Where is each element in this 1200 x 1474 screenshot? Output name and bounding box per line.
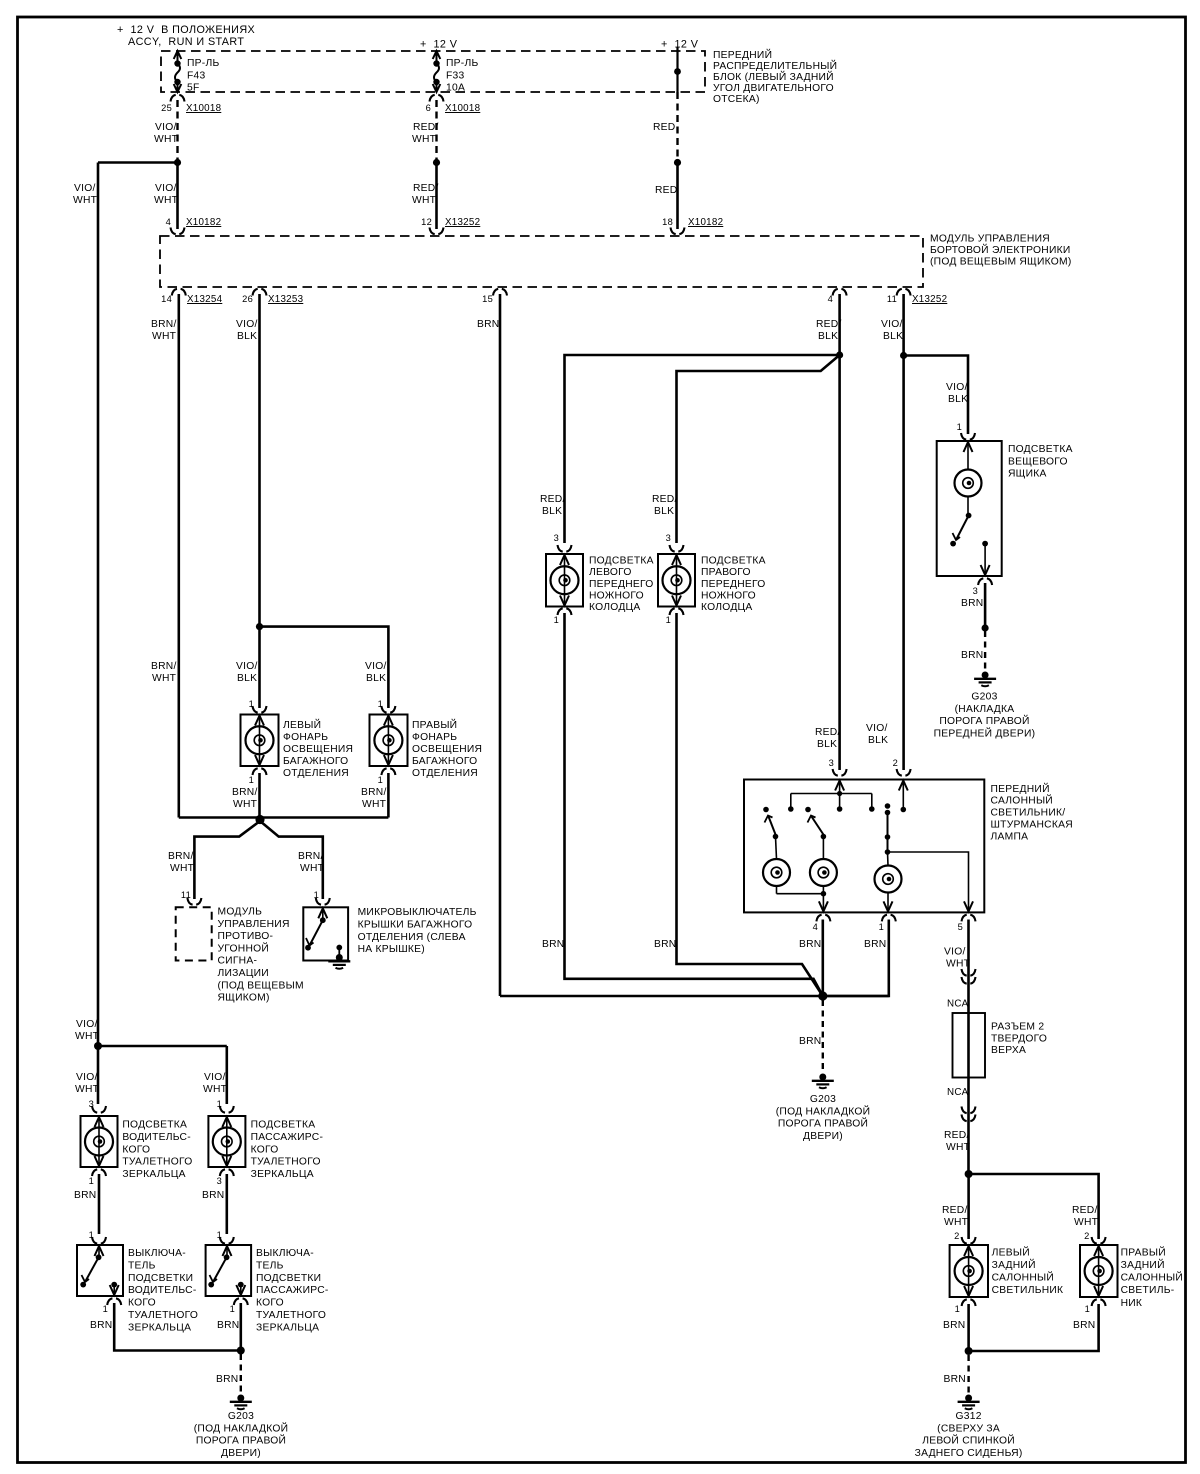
svg-text:BRN: BRN [944, 1374, 967, 1385]
svg-text:РАЗЪЕМ 2: РАЗЪЕМ 2 [991, 1022, 1044, 1033]
svg-text:VIO/: VIO/ [946, 382, 968, 393]
svg-text:ПОДСВЕТКА: ПОДСВЕТКА [701, 556, 766, 567]
svg-text:ЛЕВОГО: ЛЕВОГО [589, 567, 632, 578]
svg-text:WHT: WHT [946, 1142, 971, 1153]
svg-text:ЗАДНЕГО СИДЕНЬЯ): ЗАДНЕГО СИДЕНЬЯ) [915, 1448, 1023, 1459]
svg-text:ЯЩИКОМ): ЯЩИКОМ) [218, 993, 270, 1004]
svg-text:WHT: WHT [170, 863, 195, 874]
svg-text:5F: 5F [187, 83, 200, 94]
svg-text:+ 12 V: + 12 V [420, 39, 458, 51]
svg-text:BRN: BRN [477, 319, 500, 330]
svg-text:12: 12 [421, 217, 432, 227]
svg-text:РАСПРЕДЕЛИТЕЛЬНЫЙ: РАСПРЕДЕЛИТЕЛЬНЫЙ [713, 59, 837, 72]
svg-text:WHT: WHT [300, 863, 325, 874]
svg-text:WHT: WHT [1074, 1217, 1099, 1228]
svg-text:ОТСЕКА): ОТСЕКА) [713, 94, 760, 105]
svg-text:RED/: RED/ [944, 1130, 970, 1141]
svg-text:1: 1 [378, 775, 383, 785]
svg-text:X13253: X13253 [268, 294, 304, 305]
svg-text:3: 3 [829, 758, 834, 768]
svg-text:WHT: WHT [946, 959, 971, 970]
svg-text:VIO/: VIO/ [944, 947, 966, 958]
svg-text:ПОРОГА ПРАВОЙ: ПОРОГА ПРАВОЙ [196, 1434, 286, 1447]
svg-text:МОДУЛЬ: МОДУЛЬ [218, 907, 263, 918]
svg-text:BLK: BLK [868, 735, 888, 746]
svg-text:WHT: WHT [944, 1217, 969, 1228]
svg-text:BRN/: BRN/ [151, 661, 177, 672]
svg-text:RED/: RED/ [652, 494, 678, 505]
svg-text:3: 3 [217, 1176, 222, 1186]
svg-text:КОГО: КОГО [122, 1144, 150, 1155]
svg-text:BRN: BRN [90, 1320, 113, 1331]
svg-text:G203: G203 [810, 1094, 836, 1105]
svg-text:ТУАЛЕТНОГО: ТУАЛЕТНОГО [128, 1310, 198, 1321]
svg-text:КОЛОДЦА: КОЛОДЦА [701, 602, 753, 613]
svg-text:ОТДЕЛЕНИЯ (СЛЕВА: ОТДЕЛЕНИЯ (СЛЕВА [358, 932, 466, 943]
svg-text:БЛОК (ЛЕВЫЙ ЗАДНИЙ: БЛОК (ЛЕВЫЙ ЗАДНИЙ [713, 70, 834, 83]
svg-text:ТВЕРДОГО: ТВЕРДОГО [991, 1033, 1047, 1044]
svg-text:ВЕРХА: ВЕРХА [991, 1045, 1026, 1056]
svg-text:WHT: WHT [362, 799, 387, 810]
svg-text:ВЫКЛЮЧА-: ВЫКЛЮЧА- [128, 1248, 186, 1259]
svg-text:УГОННОЙ: УГОННОЙ [218, 941, 270, 954]
svg-text:1: 1 [89, 1176, 94, 1186]
svg-text:ДВЕРИ): ДВЕРИ) [803, 1131, 843, 1142]
svg-text:ЗЕРКАЛЬЦА: ЗЕРКАЛЬЦА [256, 1322, 319, 1333]
svg-text:ACCY, RUN И START: ACCY, RUN И START [128, 36, 244, 48]
svg-text:(ПОД НАКЛАДКОЙ: (ПОД НАКЛАДКОЙ [776, 1104, 870, 1117]
svg-text:КРЫШКИ БАГАЖНОГО: КРЫШКИ БАГАЖНОГО [358, 920, 473, 931]
svg-text:5: 5 [958, 922, 963, 932]
svg-text:ЗАДНИЙ: ЗАДНИЙ [992, 1258, 1036, 1271]
svg-text:1: 1 [1085, 1304, 1090, 1314]
svg-text:ОСВЕЩЕНИЯ: ОСВЕЩЕНИЯ [412, 744, 482, 755]
svg-text:10A: 10A [446, 83, 465, 94]
svg-text:КОГО: КОГО [256, 1298, 284, 1309]
svg-text:НОЖНОГО: НОЖНОГО [589, 590, 644, 601]
svg-text:BRN: BRN [654, 939, 677, 950]
svg-text:ЛАМПА: ЛАМПА [991, 831, 1029, 842]
svg-text:ПЕРЕДНЕГО: ПЕРЕДНЕГО [589, 579, 654, 590]
svg-text:WHT: WHT [75, 1084, 100, 1095]
svg-text:4: 4 [166, 217, 171, 227]
svg-text:МИКРОВЫКЛЮЧАТЕЛЬ: МИКРОВЫКЛЮЧАТЕЛЬ [358, 907, 477, 918]
svg-text:БАГАЖНОГО: БАГАЖНОГО [283, 756, 348, 767]
svg-text:RED/: RED/ [540, 494, 566, 505]
svg-text:КОЛОДЦА: КОЛОДЦА [589, 602, 641, 613]
svg-text:BRN/: BRN/ [298, 851, 324, 862]
svg-text:X10182: X10182 [186, 217, 221, 228]
svg-text:BLK: BLK [654, 506, 674, 517]
svg-text:БАГАЖНОГО: БАГАЖНОГО [412, 756, 477, 767]
svg-text:КОГО: КОГО [251, 1144, 279, 1155]
svg-text:VIO/: VIO/ [236, 661, 258, 672]
svg-text:BRN: BRN [217, 1320, 240, 1331]
svg-text:ПР-ЛЬ: ПР-ЛЬ [187, 58, 219, 69]
svg-text:БОРТОВОЙ ЭЛЕКТРОНИКИ: БОРТОВОЙ ЭЛЕКТРОНИКИ [930, 243, 1071, 256]
svg-text:VIO/: VIO/ [155, 122, 177, 133]
svg-text:ПЕРЕДНЕГО: ПЕРЕДНЕГО [701, 579, 766, 590]
svg-text:WHT: WHT [154, 195, 179, 206]
svg-text:(ПОД ВЕЩЕВЫМ: (ПОД ВЕЩЕВЫМ [218, 980, 304, 991]
svg-text:НОЖНОГО: НОЖНОГО [701, 590, 756, 601]
svg-text:6: 6 [426, 103, 431, 113]
svg-text:СВЕТИЛЬНИК: СВЕТИЛЬНИК [992, 1285, 1064, 1296]
svg-text:26: 26 [242, 294, 253, 304]
svg-text:VIO/: VIO/ [365, 661, 387, 672]
svg-text:RED: RED [655, 185, 678, 196]
svg-text:ПЕРЕДНИЙ: ПЕРЕДНИЙ [991, 782, 1050, 795]
svg-text:1: 1 [666, 615, 671, 625]
svg-text:ПОРОГА ПРАВОЙ: ПОРОГА ПРАВОЙ [778, 1117, 868, 1130]
svg-text:ТУАЛЕТНОГО: ТУАЛЕТНОГО [256, 1310, 326, 1321]
svg-text:ВОДИТЕЛЬС-: ВОДИТЕЛЬС- [128, 1285, 197, 1296]
svg-text:ФОНАРЬ: ФОНАРЬ [412, 732, 457, 743]
svg-text:ТЕЛЬ: ТЕЛЬ [256, 1260, 284, 1271]
svg-text:WHT: WHT [412, 134, 437, 145]
svg-text:BRN: BRN [961, 650, 984, 661]
svg-text:BRN: BRN [74, 1190, 97, 1201]
svg-text:ОСВЕЩЕНИЯ: ОСВЕЩЕНИЯ [283, 744, 353, 755]
svg-text:RED/: RED/ [815, 727, 841, 738]
svg-text:X10018: X10018 [445, 103, 481, 114]
svg-text:X10018: X10018 [186, 103, 222, 114]
svg-text:WHT: WHT [152, 673, 177, 684]
svg-text:ЛЕВЫЙ: ЛЕВЫЙ [992, 1245, 1030, 1258]
svg-text:BRN/: BRN/ [232, 787, 258, 798]
svg-text:1: 1 [230, 1304, 235, 1314]
svg-text:ЗЕРКАЛЬЦА: ЗЕРКАЛЬЦА [122, 1169, 185, 1180]
svg-text:VIO/: VIO/ [76, 1072, 98, 1083]
svg-text:1: 1 [955, 1304, 960, 1314]
svg-text:ТУАЛЕТНОГО: ТУАЛЕТНОГО [122, 1157, 192, 1168]
svg-text:BLK: BLK [817, 739, 837, 750]
svg-text:VIO/: VIO/ [76, 1019, 98, 1030]
svg-text:2: 2 [954, 1231, 959, 1241]
svg-text:ПОДСВЕТКА: ПОДСВЕТКА [122, 1120, 187, 1131]
svg-text:+ 12 V: + 12 V [661, 39, 699, 51]
svg-text:WHT: WHT [73, 195, 98, 206]
svg-text:САЛОННЫЙ: САЛОННЫЙ [1121, 1271, 1183, 1284]
svg-text:ПР-ЛЬ: ПР-ЛЬ [446, 58, 478, 69]
svg-text:BRN: BRN [799, 1036, 822, 1047]
svg-text:ПОРОГА ПРАВОЙ: ПОРОГА ПРАВОЙ [939, 714, 1029, 727]
svg-text:VIO/: VIO/ [881, 319, 903, 330]
svg-text:ПРАВЫЙ: ПРАВЫЙ [1121, 1245, 1166, 1258]
svg-text:WHT: WHT [233, 799, 258, 810]
svg-text:1: 1 [957, 422, 962, 432]
svg-text:BRN/: BRN/ [168, 851, 194, 862]
svg-text:BRN: BRN [961, 598, 984, 609]
svg-text:1: 1 [554, 615, 559, 625]
svg-text:F33: F33 [446, 71, 465, 82]
svg-text:BLK: BLK [237, 331, 257, 342]
svg-text:11: 11 [181, 890, 191, 900]
svg-text:ЯЩИКА: ЯЩИКА [1008, 469, 1047, 480]
svg-text:ЗЕРКАЛЬЦА: ЗЕРКАЛЬЦА [251, 1169, 314, 1180]
svg-text:BRN/: BRN/ [361, 787, 387, 798]
svg-text:ПОДСВЕТКИ: ПОДСВЕТКИ [128, 1273, 193, 1284]
svg-text:X13252: X13252 [445, 217, 480, 228]
svg-text:СВЕТИЛЬНИК/: СВЕТИЛЬНИК/ [991, 808, 1066, 819]
svg-text:G203: G203 [971, 692, 997, 703]
svg-text:ПАССАЖИРС-: ПАССАЖИРС- [251, 1132, 324, 1143]
svg-text:ПОДСВЕТКИ: ПОДСВЕТКИ [256, 1273, 321, 1284]
svg-text:WHT: WHT [152, 331, 177, 342]
svg-text:BLK: BLK [542, 506, 562, 517]
svg-text:11: 11 [887, 294, 897, 304]
svg-text:ЗАДНИЙ: ЗАДНИЙ [1121, 1258, 1165, 1271]
svg-text:САЛОННЫЙ: САЛОННЫЙ [991, 794, 1053, 807]
svg-text:МОДУЛЬ УПРАВЛЕНИЯ: МОДУЛЬ УПРАВЛЕНИЯ [930, 234, 1050, 245]
svg-text:ТУАЛЕТНОГО: ТУАЛЕТНОГО [251, 1157, 321, 1168]
svg-text:СВЕТИЛЬ-: СВЕТИЛЬ- [1121, 1285, 1175, 1296]
svg-text:3: 3 [554, 533, 559, 543]
svg-text:BLK: BLK [237, 673, 257, 684]
svg-text:САЛОННЫЙ: САЛОННЫЙ [992, 1271, 1054, 1284]
svg-text:(ПОД НАКЛАДКОЙ: (ПОД НАКЛАДКОЙ [194, 1421, 288, 1434]
svg-text:УГОЛ ДВИГАТЕЛЬНОГО: УГОЛ ДВИГАТЕЛЬНОГО [713, 83, 834, 94]
svg-text:ПАССАЖИРС-: ПАССАЖИРС- [256, 1285, 329, 1296]
svg-text:WHT: WHT [154, 134, 179, 145]
svg-text:WHT: WHT [75, 1031, 100, 1042]
svg-text:2: 2 [893, 758, 898, 768]
svg-text:ТЕЛЬ: ТЕЛЬ [128, 1260, 156, 1271]
svg-text:X13254: X13254 [187, 294, 223, 305]
svg-text:ОТДЕЛЕНИЯ: ОТДЕЛЕНИЯ [412, 768, 478, 779]
svg-text:ШТУРМАНСКАЯ: ШТУРМАНСКАЯ [991, 820, 1073, 831]
svg-text:VIO/: VIO/ [866, 723, 888, 734]
svg-text:G312: G312 [955, 1411, 981, 1422]
svg-text:RED/: RED/ [816, 319, 842, 330]
svg-text:ВОДИТЕЛЬС-: ВОДИТЕЛЬС- [122, 1132, 190, 1143]
svg-text:F43: F43 [187, 71, 206, 82]
svg-text:ПОДСВЕТКА: ПОДСВЕТКА [251, 1120, 316, 1131]
svg-text:RED/: RED/ [413, 122, 439, 133]
svg-text:4: 4 [828, 294, 833, 304]
svg-text:BRN: BRN [799, 939, 822, 950]
svg-text:ПОДСВЕТКА: ПОДСВЕТКА [1008, 444, 1073, 455]
svg-text:WHT: WHT [412, 195, 437, 206]
svg-text:BRN: BRN [202, 1190, 225, 1201]
svg-text:BRN/: BRN/ [151, 319, 177, 330]
svg-text:X10182: X10182 [688, 217, 723, 228]
svg-text:+ 12 V В ПОЛОЖЕНИЯХ: + 12 V В ПОЛОЖЕНИЯХ [117, 24, 255, 36]
svg-text:BLK: BLK [883, 331, 903, 342]
svg-text:ПОДСВЕТКА: ПОДСВЕТКА [589, 556, 654, 567]
svg-text:СИГНА-: СИГНА- [218, 956, 258, 967]
svg-text:НА КРЫШКЕ): НА КРЫШКЕ) [358, 944, 425, 955]
svg-text:BLK: BLK [948, 394, 968, 405]
svg-text:NCA: NCA [947, 1087, 969, 1098]
svg-text:BLK: BLK [818, 331, 838, 342]
svg-text:BLK: BLK [366, 673, 386, 684]
svg-text:ПРАВЫЙ: ПРАВЫЙ [412, 718, 457, 731]
svg-text:RED/: RED/ [1072, 1205, 1098, 1216]
svg-text:VIO/: VIO/ [204, 1072, 226, 1083]
svg-text:1: 1 [103, 1304, 108, 1314]
svg-text:14: 14 [161, 294, 172, 304]
svg-text:ЛЕВЫЙ: ЛЕВЫЙ [283, 718, 321, 731]
svg-text:ЗЕРКАЛЬЦА: ЗЕРКАЛЬЦА [128, 1322, 191, 1333]
svg-text:WHT: WHT [203, 1084, 228, 1095]
svg-text:BRN: BRN [1073, 1320, 1096, 1331]
svg-text:(ПОД ВЕЩЕВЫМ ЯЩИКОМ): (ПОД ВЕЩЕВЫМ ЯЩИКОМ) [930, 257, 1072, 268]
svg-text:X13252: X13252 [912, 294, 947, 305]
svg-text:1: 1 [879, 922, 884, 932]
svg-text:ПРОТИВО-: ПРОТИВО- [218, 931, 274, 942]
svg-text:25: 25 [161, 103, 172, 113]
svg-text:3: 3 [973, 586, 978, 596]
svg-text:VIO/: VIO/ [74, 183, 96, 194]
svg-text:3: 3 [666, 533, 671, 543]
svg-text:RED/: RED/ [413, 183, 439, 194]
svg-text:УПРАВЛЕНИЯ: УПРАВЛЕНИЯ [218, 919, 290, 930]
svg-text:(НАКЛАДКА: (НАКЛАДКА [955, 704, 1015, 715]
svg-text:4: 4 [813, 922, 818, 932]
svg-text:BRN: BRN [542, 939, 565, 950]
svg-text:ВЫКЛЮЧА-: ВЫКЛЮЧА- [256, 1248, 314, 1259]
svg-text:КОГО: КОГО [128, 1298, 156, 1309]
svg-text:ДВЕРИ): ДВЕРИ) [221, 1448, 261, 1459]
svg-text:ЛЕВОЙ СПИНКОЙ: ЛЕВОЙ СПИНКОЙ [922, 1434, 1015, 1447]
svg-text:RED/: RED/ [942, 1205, 968, 1216]
svg-text:ФОНАРЬ: ФОНАРЬ [283, 732, 328, 743]
svg-text:NCA: NCA [947, 999, 969, 1010]
svg-text:1: 1 [249, 775, 254, 785]
svg-text:VIO/: VIO/ [155, 183, 177, 194]
svg-text:BRN: BRN [216, 1374, 239, 1385]
svg-text:VIO/: VIO/ [236, 319, 258, 330]
svg-text:ЛИЗАЦИИ: ЛИЗАЦИИ [218, 968, 269, 979]
svg-text:BRN: BRN [943, 1320, 966, 1331]
svg-text:18: 18 [662, 217, 673, 227]
svg-text:2: 2 [1084, 1231, 1089, 1241]
svg-text:RED: RED [653, 122, 676, 133]
svg-text:ВЕЩЕВОГО: ВЕЩЕВОГО [1008, 456, 1068, 467]
svg-text:НИК: НИК [1121, 1298, 1143, 1309]
svg-text:ОТДЕЛЕНИЯ: ОТДЕЛЕНИЯ [283, 768, 349, 779]
svg-text:ПЕРЕДНИЙ: ПЕРЕДНИЙ [713, 48, 772, 61]
svg-text:(СВЕРХУ ЗА: (СВЕРХУ ЗА [937, 1423, 1000, 1434]
svg-text:G203: G203 [228, 1411, 254, 1422]
svg-text:15: 15 [482, 294, 493, 304]
svg-text:ПРАВОГО: ПРАВОГО [701, 567, 751, 578]
svg-text:ПЕРЕДНЕЙ ДВЕРИ): ПЕРЕДНЕЙ ДВЕРИ) [934, 726, 1036, 739]
svg-text:BRN: BRN [864, 939, 887, 950]
